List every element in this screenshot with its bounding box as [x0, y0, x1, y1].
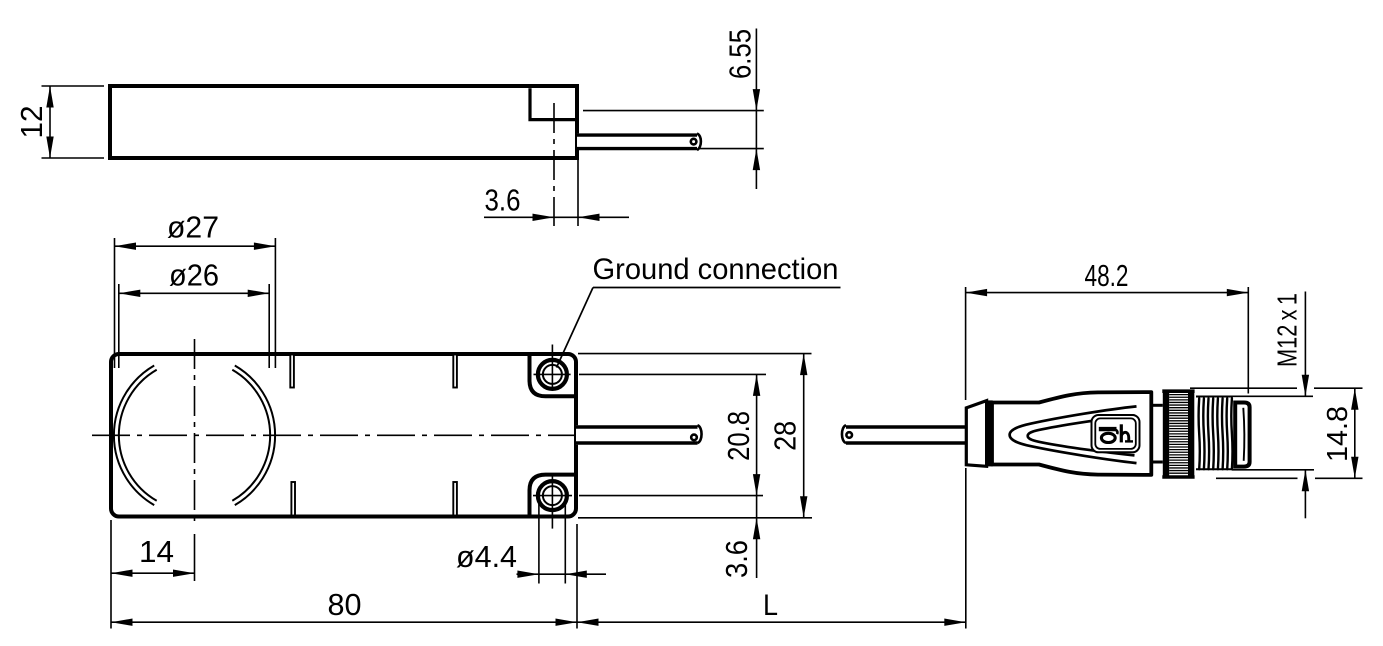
svg-text:20.8: 20.8 — [721, 411, 756, 461]
svg-text:3.6: 3.6 — [719, 540, 754, 578]
svg-text:14.8: 14.8 — [1322, 406, 1354, 462]
svg-text:48.2: 48.2 — [1085, 258, 1129, 293]
svg-text:14: 14 — [139, 534, 174, 569]
svg-text:ø26: ø26 — [169, 258, 219, 293]
svg-text:3.6: 3.6 — [485, 183, 521, 218]
svg-text:M12 x 1: M12 x 1 — [1271, 293, 1302, 367]
svg-text:12: 12 — [14, 106, 49, 139]
svg-text:L: L — [763, 589, 778, 622]
svg-text:80: 80 — [328, 587, 362, 622]
svg-text:Ground connection: Ground connection — [593, 253, 839, 286]
svg-text:28: 28 — [768, 421, 803, 451]
svg-text:6.55: 6.55 — [723, 29, 758, 79]
svg-text:ø4.4: ø4.4 — [456, 539, 517, 574]
svg-text:ø27: ø27 — [167, 210, 219, 245]
